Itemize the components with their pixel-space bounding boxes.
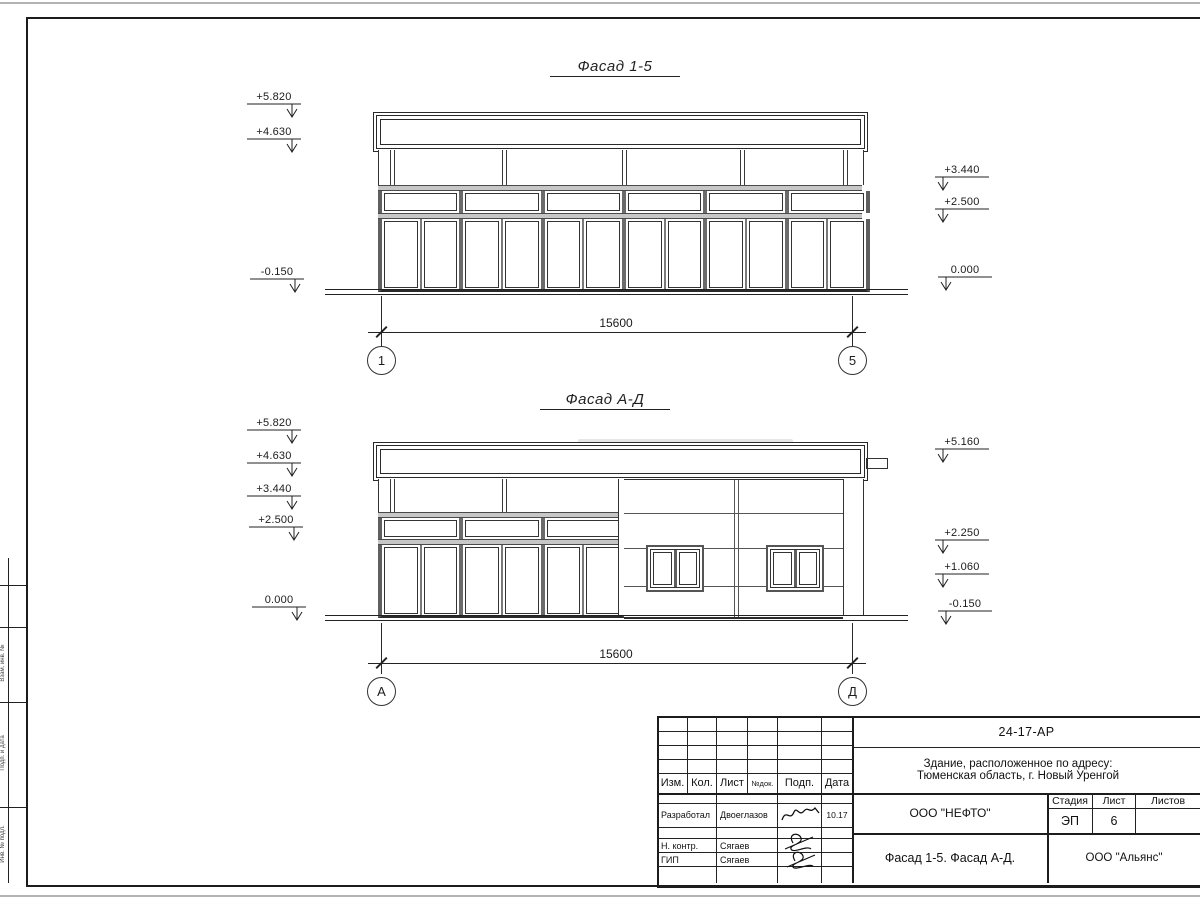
elevation-mark: +4.630 (246, 450, 302, 478)
margin-label: Взам. инв. № (0, 631, 6, 695)
dimension-value: 15600 (561, 647, 671, 661)
dimension-value: 15600 (561, 316, 671, 330)
stage-value: ЭП (1048, 809, 1092, 832)
transom-pane (463, 191, 544, 213)
elevation-mark: +4.630 (246, 126, 302, 154)
dimension-line (368, 663, 866, 664)
glazing-pane (828, 219, 866, 290)
facade-a-d-title: Фасад А-Д (540, 391, 670, 410)
glazing-pane (545, 219, 585, 290)
transom-pane (789, 191, 866, 213)
glazing-pane (545, 545, 585, 616)
elevation-mark: +2.500 (248, 514, 304, 542)
col-data: Дата (822, 774, 852, 792)
transom-pane (707, 191, 788, 213)
elevation-mark: +3.440 (934, 164, 990, 192)
axis-bubble-a: А (367, 677, 396, 706)
date-value: 10.17 (822, 807, 852, 823)
glazing-pane (463, 219, 503, 290)
sign-band (373, 442, 868, 481)
glazing-pane (422, 545, 464, 616)
facade-1-5-title: Фасад 1-5 (550, 58, 680, 77)
document-code: 24-17-АР (853, 717, 1200, 746)
transom-pane (463, 518, 544, 539)
sheet-number: 6 (1093, 809, 1135, 832)
axis-bubble-d: Д (838, 677, 867, 706)
axis-bubble-1: 1 (367, 346, 396, 375)
project-address: Здание, расположенное по адресу: Тюменск… (853, 749, 1183, 791)
elevation-mark: -0.150 (937, 598, 993, 626)
glazing-pane (584, 219, 626, 290)
role-label: ГИП (661, 853, 716, 866)
elevation-mark: +2.500 (934, 196, 990, 224)
window (646, 545, 704, 592)
glazing-pane (503, 545, 545, 616)
signature (779, 831, 821, 871)
glazing-pane (584, 545, 622, 616)
glazing-row (378, 219, 870, 292)
contractor-name: ООО "НЕФТО" (853, 794, 1047, 832)
col-list: Лист (717, 774, 747, 792)
org-name: ООО "Альянс" (1048, 834, 1200, 882)
axis-bubble-5: 5 (838, 346, 867, 375)
elevation-mark: +5.160 (934, 436, 990, 464)
window (766, 545, 824, 592)
col-podp: Подп. (778, 774, 821, 792)
glazing-pane (626, 219, 666, 290)
col-kol: Кол. (688, 774, 716, 792)
col-izm: Изм. (658, 774, 687, 792)
transom-pane (626, 191, 707, 213)
drawing-title: Фасад 1-5. Фасад А-Д. (853, 834, 1047, 882)
elevation-mark: +2.250 (934, 527, 990, 555)
glazing-pane (707, 219, 747, 290)
role-name: Сягаев (720, 853, 777, 866)
role-name: Двоеглазов (720, 805, 777, 825)
drawing-sheet: Взам. инв. № Подп. и дата Инв. № подл. Ф… (0, 0, 1200, 900)
sign-band (373, 112, 868, 152)
corner-pilaster (843, 479, 864, 616)
dimension-line (368, 332, 866, 333)
sheet-label: Лист (1093, 794, 1135, 807)
glazing-pane (789, 219, 829, 290)
transom-pane (545, 191, 626, 213)
glazing-pane (747, 219, 789, 290)
role-label: Разработал (661, 805, 716, 825)
elevation-mark: +3.440 (246, 483, 302, 511)
ground-line (325, 289, 908, 295)
glazing-pane (422, 219, 464, 290)
glazing-pane (463, 545, 503, 616)
col-ndoc: №док. (748, 774, 777, 792)
elevation-mark: +5.820 (246, 417, 302, 445)
glazing-pane (666, 219, 708, 290)
gutter-outlet (866, 458, 888, 469)
stage-label: Стадия (1048, 794, 1092, 807)
elevation-mark: +1.060 (934, 561, 990, 589)
frieze-band (378, 150, 864, 185)
scan-edge-top (0, 2, 1200, 4)
glazing-pane (503, 219, 545, 290)
role-label: Н. контр. (661, 839, 716, 852)
role-name: Сягаев (720, 839, 777, 852)
transom-pane (382, 191, 463, 213)
transom-row (378, 518, 626, 539)
sheets-label: Листов (1136, 794, 1200, 807)
signature (779, 800, 821, 826)
transom-pane (545, 518, 622, 539)
elevation-mark: +5.820 (246, 91, 302, 119)
transom-pane (382, 518, 463, 539)
elevation-mark: 0.000 (251, 594, 307, 622)
glazing-row (378, 545, 626, 618)
scan-edge-bottom (0, 895, 1200, 897)
glazing-pane (382, 219, 422, 290)
margin-label: Подп. и дата (0, 721, 6, 785)
glazing-pane (382, 545, 422, 616)
margin-label: Инв. № подл. (0, 812, 6, 876)
transom-row (378, 191, 870, 213)
elevation-mark: 0.000 (937, 264, 993, 292)
ground-line (325, 615, 908, 621)
frieze-band (378, 479, 620, 512)
elevation-mark: -0.150 (249, 266, 305, 294)
